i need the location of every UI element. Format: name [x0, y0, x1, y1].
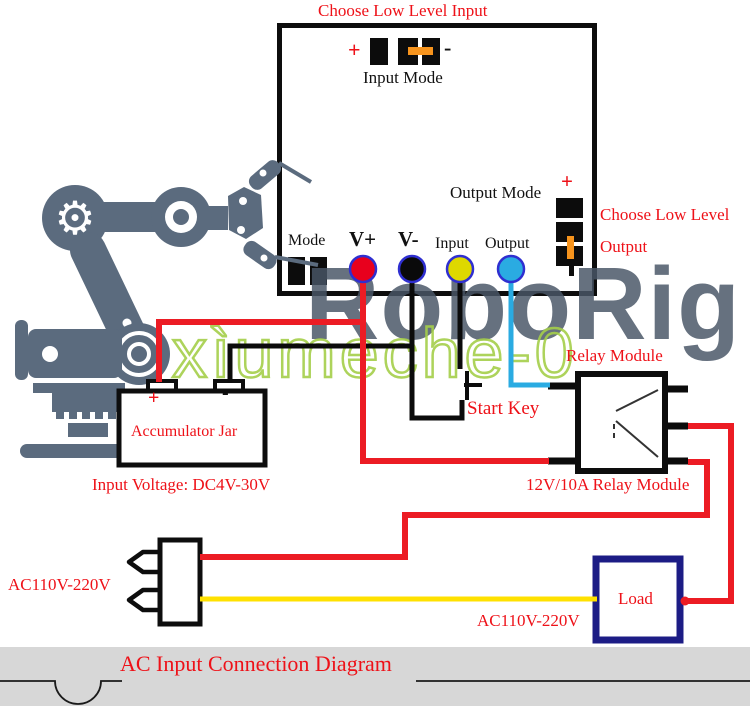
- choose-input-label: Choose Low Level Input: [318, 2, 488, 21]
- vplus-terminal-label: V+: [349, 228, 376, 251]
- start-key-switch: [464, 371, 482, 400]
- input-voltage-caption: Input Voltage: DC4V-30V: [92, 476, 270, 495]
- wiring-diagram-image: ⚙: [0, 0, 750, 706]
- ac-plug-label: AC110V-220V: [8, 576, 111, 595]
- relay-title: Relay Module: [566, 347, 663, 366]
- mode-terminal-label: Mode: [288, 232, 325, 250]
- input-plus-label: +: [348, 38, 361, 62]
- terminal-output-circle: [498, 256, 524, 282]
- red-junction-dot: [681, 597, 690, 606]
- terminal-vminus-circle: [399, 256, 425, 282]
- terminal-vplus-circle: [350, 256, 376, 282]
- input-mode-label: Input Mode: [363, 69, 443, 88]
- battery-minus-label: -: [222, 382, 229, 404]
- footer-title: AC Input Connection Diagram: [120, 651, 392, 677]
- terminal-input-circle: [447, 256, 473, 282]
- red-wire-vplus-to-relay: [363, 276, 549, 461]
- input-terminal-label: Input: [435, 235, 469, 253]
- choose-output-label-line1: Choose Low Level: [600, 206, 729, 225]
- relay-caption: 12V/10A Relay Module: [526, 476, 689, 495]
- battery-plus-label: +: [148, 387, 159, 409]
- relay-box: [548, 374, 688, 471]
- cyan-wire-output-to-relay: [511, 276, 550, 385]
- footer-band: AC Input Connection Diagram: [0, 647, 750, 706]
- input-minus-label: -: [444, 36, 451, 60]
- output-mode-label: Output Mode: [450, 184, 541, 203]
- choose-output-label-line2: Output: [600, 238, 647, 257]
- start-key-label: Start Key: [467, 399, 539, 420]
- red-wire-vplus-to-battery: [159, 322, 363, 382]
- load-ac-caption: AC110V-220V: [477, 612, 580, 631]
- vminus-terminal-label: V-: [398, 228, 419, 251]
- accumulator-label: Accumulator Jar: [131, 423, 237, 441]
- output-terminal-label: Output: [485, 235, 529, 253]
- output-plus-label: +: [561, 170, 573, 193]
- ac-plug: [129, 540, 200, 624]
- load-label: Load: [618, 590, 653, 609]
